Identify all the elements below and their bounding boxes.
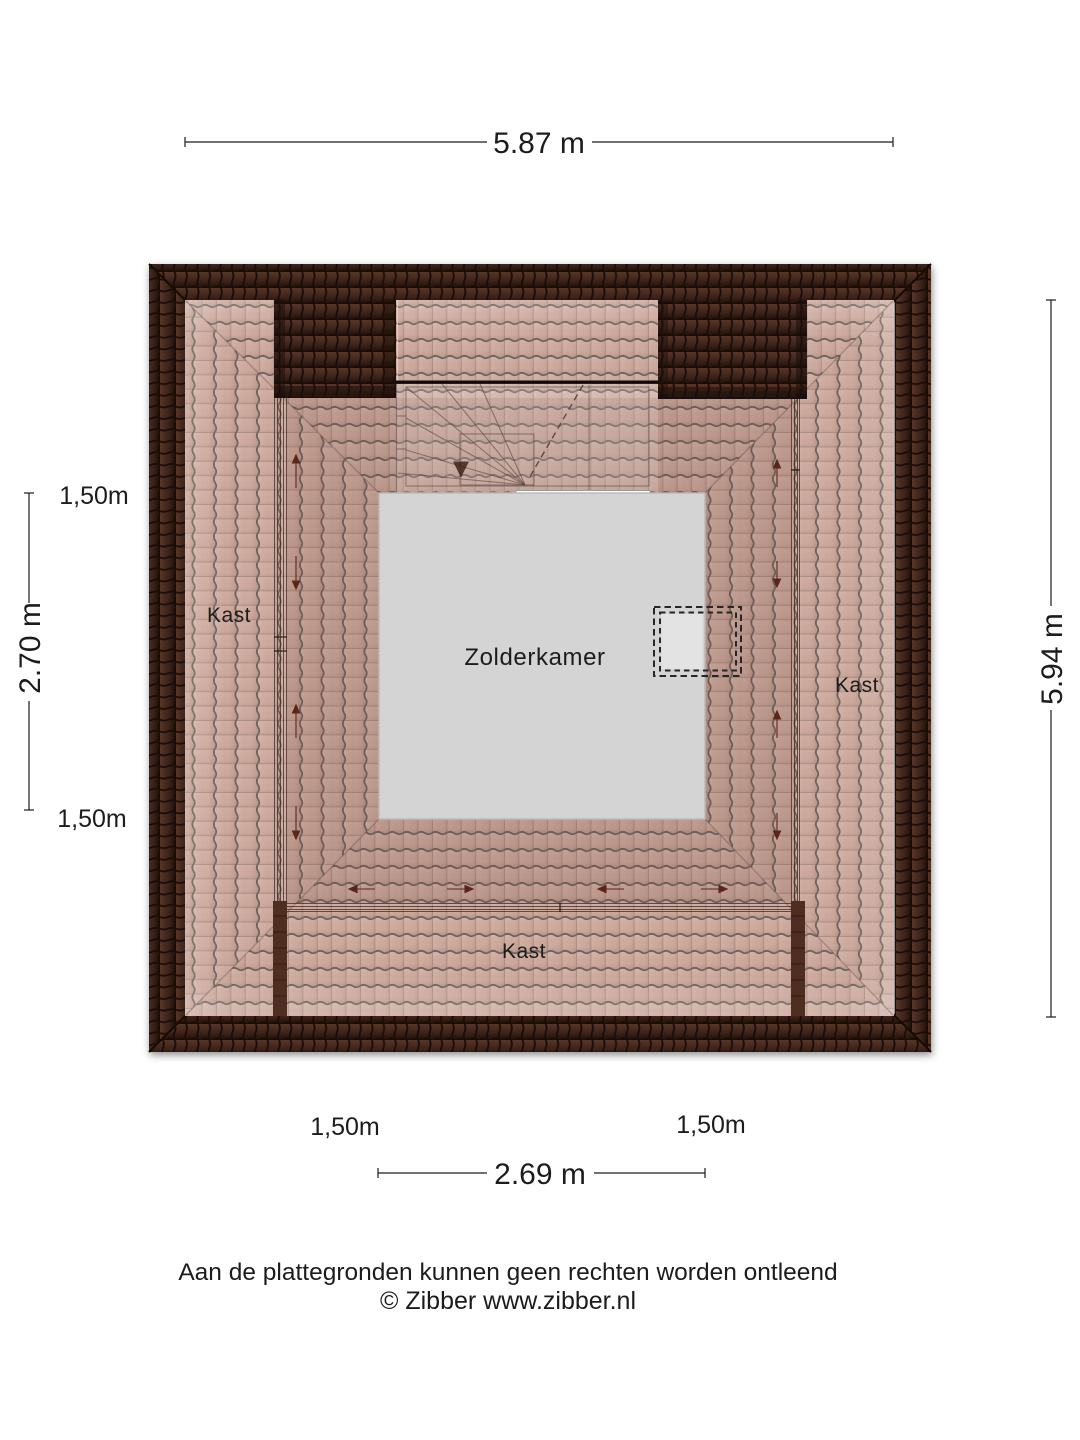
svg-text:2.70 m: 2.70 m	[14, 602, 47, 694]
svg-text:© Zibber www.zibber.nl: © Zibber www.zibber.nl	[380, 1287, 636, 1315]
svg-text:2.69 m: 2.69 m	[494, 1158, 586, 1191]
svg-text:1,50m: 1,50m	[57, 805, 126, 833]
svg-text:1,50m: 1,50m	[310, 1113, 379, 1141]
svg-text:Aan de plattegronden kunnen ge: Aan de plattegronden kunnen geen rechten…	[178, 1259, 837, 1286]
svg-text:5.94 m: 5.94 m	[1036, 613, 1069, 705]
svg-text:1,50m: 1,50m	[59, 482, 128, 510]
svg-text:Kast: Kast	[502, 940, 546, 963]
svg-text:1,50m: 1,50m	[676, 1111, 745, 1139]
svg-text:Kast: Kast	[207, 604, 251, 627]
svg-text:Kast: Kast	[835, 674, 879, 697]
svg-text:5.87 m: 5.87 m	[493, 127, 585, 160]
svg-text:Zolderkamer: Zolderkamer	[464, 644, 605, 671]
